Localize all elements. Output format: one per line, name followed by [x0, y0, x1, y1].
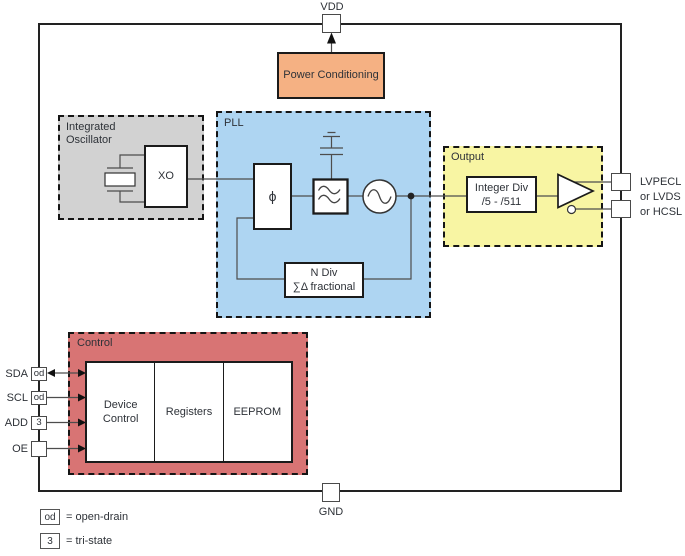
integer-divider-line2: /5 - /511 [482, 195, 522, 209]
legend-tri-state-tag: 3 [47, 536, 53, 547]
output-signal-type-2: or LVDS [640, 190, 681, 205]
power-conditioning-block: Power Conditioning [277, 52, 385, 99]
scl-pin: od [31, 391, 47, 405]
sda-pin-label: SDA [0, 367, 28, 381]
add-pin-label: ADD [0, 416, 28, 430]
output-pin-positive [611, 173, 631, 191]
integer-divider-line1: Integer Div [475, 181, 528, 195]
output-section-title: Output [451, 151, 484, 164]
oe-pin [31, 441, 47, 457]
registers-block: Registers [154, 363, 222, 461]
oscillator-section-title: Integrated Oscillator [66, 121, 144, 147]
eeprom-block: EEPROM [223, 363, 291, 461]
oe-pin-label: OE [0, 442, 28, 456]
device-control-block: Device Control [87, 363, 154, 461]
legend-open-drain-meaning: = open-drain [66, 511, 128, 524]
gnd-label: GND [309, 506, 353, 519]
legend-tri-state-meaning: = tri-state [66, 535, 112, 548]
scl-pin-label: SCL [0, 391, 28, 405]
block-diagram: Integrated Oscillator PLL Output Control [0, 0, 685, 556]
integer-divider-block: Integer Div /5 - /511 [466, 176, 537, 213]
pll-section-title: PLL [224, 117, 244, 130]
gnd-pin [322, 483, 340, 502]
sda-pin-tag: od [34, 369, 45, 379]
output-signal-type-1: LVPECL [640, 175, 681, 190]
n-divider-line2: ∑Δ fractional [293, 280, 355, 294]
legend-open-drain-box: od [40, 509, 60, 525]
sda-pin: od [31, 367, 47, 381]
power-conditioning-label: Power Conditioning [283, 69, 378, 82]
xo-label: XO [158, 170, 174, 183]
phase-detector-symbol: ϕ [269, 190, 277, 203]
xo-block: XO [144, 145, 188, 208]
control-section-title: Control [77, 337, 112, 350]
vdd-pin [322, 14, 341, 33]
n-divider-block: N Div ∑Δ fractional [284, 262, 364, 298]
legend-tri-state-box: 3 [40, 533, 60, 549]
vdd-label: VDD [310, 1, 354, 14]
output-pin-negative [611, 200, 631, 218]
control-inner-block: Device Control Registers EEPROM [85, 361, 293, 463]
add-pin-tag: 3 [36, 418, 41, 428]
legend-open-drain-tag: od [44, 512, 55, 523]
output-signal-type-3: or HCSL [640, 205, 682, 220]
add-pin: 3 [31, 416, 47, 430]
n-divider-line1: N Div [311, 266, 338, 280]
phase-detector-block: ϕ [253, 163, 292, 230]
scl-pin-tag: od [34, 393, 45, 403]
